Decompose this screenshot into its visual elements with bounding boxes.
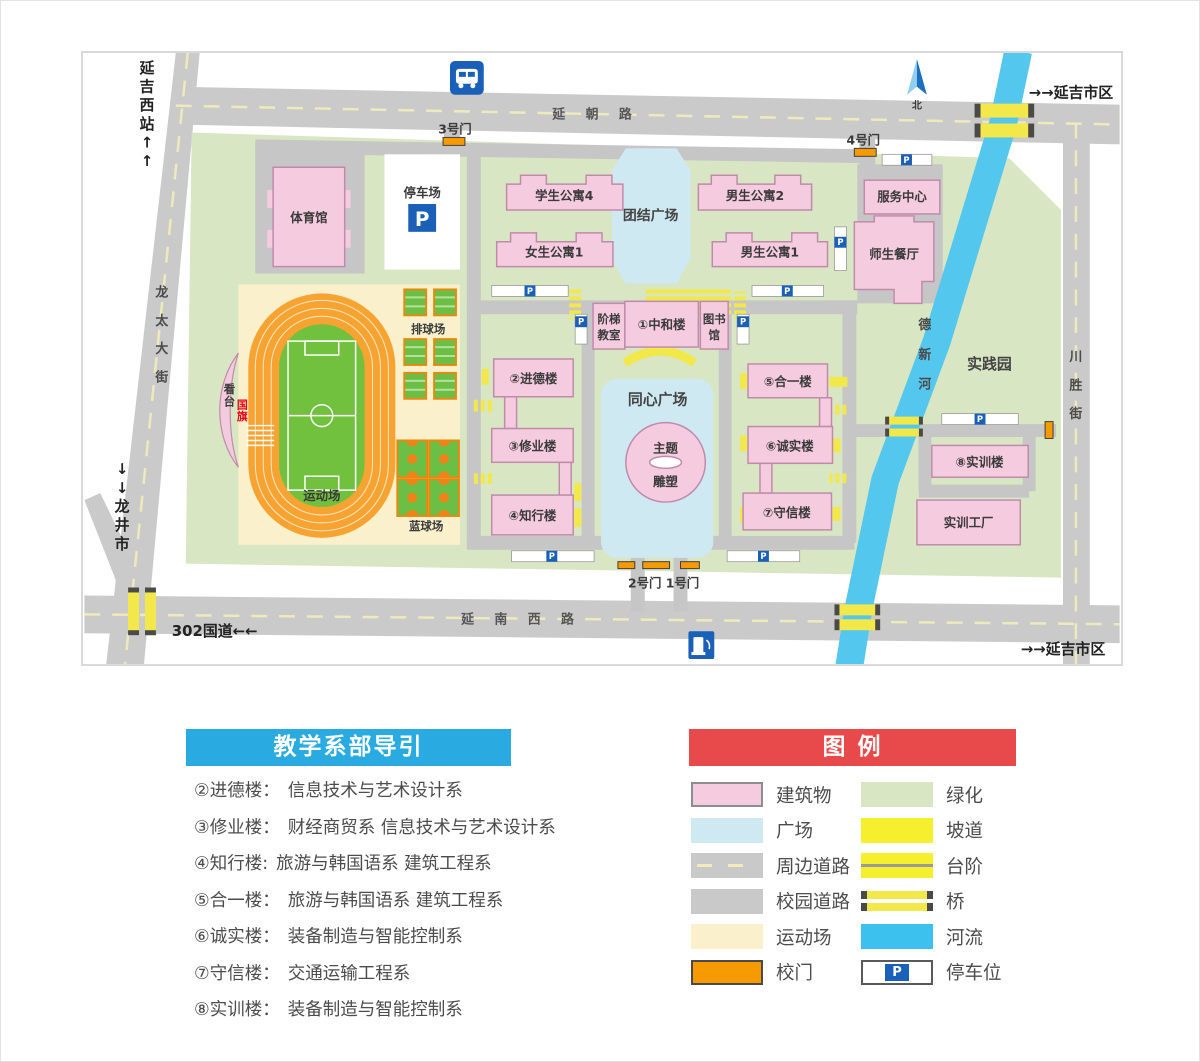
gate-4 <box>854 148 876 156</box>
legend-row-campus-road: 校园道路 <box>691 884 850 920</box>
svg-text:P: P <box>549 551 555 561</box>
parking-lot-label: 停车场 <box>404 185 441 200</box>
guide-panel-title: 教学系部导引 <box>186 729 511 766</box>
campus-road-swatch <box>691 889 763 914</box>
svg-text:P: P <box>903 155 909 165</box>
parking-swatch-p: P <box>885 964 909 981</box>
paiqiuchang-label: 排球场 <box>411 322 445 336</box>
guide-item-name: ④知行楼: <box>194 854 268 874</box>
sculpture-oval <box>650 456 682 468</box>
guide-item-dept: 旅游与韩国语系 建筑工程系 <box>276 854 492 874</box>
svg-text:P: P <box>527 286 533 296</box>
legend-panel-title: 图 例 <box>689 729 1016 766</box>
shijianyuan-label: 实践园 <box>967 355 1012 373</box>
legend-row-building: 建筑物 <box>691 777 850 813</box>
road-yannanxi-label: 延 南 西 路 <box>460 611 582 627</box>
gate-2 <box>618 562 635 569</box>
xiuye-label: ③修业楼 <box>509 438 557 453</box>
jieti-label-1: 阶梯 <box>598 312 621 326</box>
guide-item: ③修业楼：财经商贸系 信息技术与艺术设计系 <box>194 810 674 847</box>
yundongchang-label: 运动场 <box>303 488 340 503</box>
guide-item: ⑥诚实楼：装备制造与智能控制系 <box>194 919 674 956</box>
gate-middle <box>643 562 670 569</box>
guide-item: ②进德楼：信息技术与艺术设计系 <box>194 773 674 810</box>
guide-item-dept: 财经商贸系 信息技术与艺术设计系 <box>288 818 556 838</box>
legend-row-green: 绿化 <box>861 777 1002 813</box>
guide-list: ②进德楼：信息技术与艺术设计系 ③修业楼：财经商贸系 信息技术与艺术设计系 ④知… <box>194 773 674 1029</box>
tushu-label-1: 图书 <box>703 312 726 326</box>
campus-map: P <box>81 51 1123 666</box>
guide-item-name: ⑧实训楼： <box>194 1000 280 1020</box>
corridor-2-3 <box>505 397 517 429</box>
legend-row-river: 河流 <box>861 919 1002 955</box>
guide-item: ⑤合一楼：旅游与韩国语系 建筑工程系 <box>194 883 674 920</box>
diaosu-label: 雕塑 <box>653 474 678 489</box>
legend-row-parking: P停车位 <box>861 955 1002 991</box>
jinde-label: ②进德楼 <box>510 371 558 386</box>
outer-road-swatch <box>691 853 763 878</box>
guide-item-dept: 装备制造与智能控制系 <box>288 1000 463 1020</box>
guide-item-name: ⑤合一楼： <box>194 891 280 911</box>
gate-1 <box>680 562 699 569</box>
bridge-swatch <box>861 889 933 914</box>
shixunlou-label: ⑧实训楼 <box>956 454 1004 469</box>
svg-text:P: P <box>977 414 983 424</box>
field-swatch <box>691 924 763 949</box>
tuanjie-label: 团结广场 <box>623 207 679 224</box>
guoqi-label: 国旗 <box>237 399 248 423</box>
longjing-label: ↓↓龙井市 <box>114 460 130 553</box>
nansheng1-label: 男生公寓1 <box>741 245 799 260</box>
gate-east <box>1045 422 1053 439</box>
ramp-swatch <box>861 818 933 843</box>
basketball-courts <box>397 440 459 516</box>
guide-item-name: ⑥诚实楼： <box>194 927 280 947</box>
city-bottom-label: →→延吉市区 <box>1021 640 1106 658</box>
building-swatch <box>691 782 763 807</box>
guide-item-dept: 交通运输工程系 <box>288 964 411 984</box>
legend-row-plaza: 广场 <box>691 813 850 849</box>
legend-row-field: 运动场 <box>691 919 850 955</box>
bus-stop-icon <box>450 61 484 95</box>
station-label: 延吉西站↑↑ <box>139 59 155 170</box>
guide-item-dept: 装备制造与智能控制系 <box>288 927 463 947</box>
tongxin-label: 同心广场 <box>628 391 688 409</box>
corridor-6-7 <box>760 463 772 493</box>
tushu-label-2: 馆 <box>709 328 720 342</box>
svg-text:P: P <box>784 286 790 296</box>
guide-item: ④知行楼:旅游与韩国语系 建筑工程系 <box>194 846 674 883</box>
guide-item: ⑦守信楼：交通运输工程系 <box>194 956 674 993</box>
corridor-5-6 <box>820 398 832 427</box>
zhonghe-label: ①中和楼 <box>638 317 686 332</box>
legend-row-outer-road: 周边道路 <box>691 848 850 884</box>
shouxin-label: ⑦守信楼 <box>763 505 811 520</box>
gate21-label: 2号门 1号门 <box>628 576 699 591</box>
legend-row-steps: 台阶 <box>861 848 1002 884</box>
guide-item-name: ③修业楼： <box>194 818 280 838</box>
shisheng-label: 师生餐厅 <box>869 247 919 262</box>
legend-column-1: 建筑物 广场 周边道路 校园道路 运动场 校门 <box>691 777 850 990</box>
fuwu-label: 服务中心 <box>877 189 927 204</box>
legend-row-ramp: 坡道 <box>861 813 1002 849</box>
guide-item: ⑧实训楼：装备制造与智能控制系 <box>194 992 674 1029</box>
city-top-label: →→延吉市区 <box>1029 84 1114 102</box>
legend-row-bridge: 桥 <box>861 884 1002 920</box>
road-chuansheng-label: 川胜街 <box>1068 350 1082 422</box>
plaza-swatch <box>691 818 763 843</box>
svg-text:P: P <box>837 237 843 247</box>
road-yanchao-label: 延 朝 路 <box>551 107 639 123</box>
svg-text:P: P <box>578 317 584 327</box>
gate-3 <box>443 137 465 145</box>
guide-item-dept: 旅游与韩国语系 建筑工程系 <box>288 891 504 911</box>
guide-item-name: ②进德楼： <box>194 781 280 801</box>
lanqiuchang-label: 蓝球场 <box>409 519 443 533</box>
xuesheng4-label: 学生公寓4 <box>535 188 594 203</box>
north-label: 北 <box>912 99 922 112</box>
guide-item-name: ⑦守信楼： <box>194 964 280 984</box>
campus-map-svg: P <box>83 53 1121 664</box>
shixun-gongchang-label: 实训工厂 <box>944 515 994 530</box>
chengshi-label: ⑥诚实楼 <box>766 438 814 453</box>
legend-row-gate: 校门 <box>691 955 850 991</box>
gas-station-icon <box>688 631 714 659</box>
green-swatch <box>861 782 933 807</box>
jieti-label-2: 教室 <box>597 328 621 342</box>
steps-swatch <box>861 853 933 878</box>
nvsheng1-label: 女生公寓1 <box>525 245 583 260</box>
gate3-label: 3号门 <box>438 121 471 136</box>
nansheng2-label: 男生公寓2 <box>726 188 784 203</box>
page-canvas: P <box>0 0 1200 1062</box>
zhuti-label: 主题 <box>653 440 678 455</box>
parking-lot-p-text: P <box>415 208 430 231</box>
tiyuguan-label: 体育馆 <box>290 210 327 225</box>
gate-swatch <box>691 960 763 985</box>
zhixing-label: ④知行楼 <box>509 508 557 523</box>
river-swatch <box>861 924 933 949</box>
svg-text:P: P <box>740 317 746 327</box>
gate4-label: 4号门 <box>847 132 880 147</box>
legend-column-2: 绿化 坡道 台阶 桥 河流 P停车位 <box>861 777 1002 990</box>
svg-text:P: P <box>760 551 766 561</box>
heyi-label: ⑤合一楼 <box>764 374 812 389</box>
national-road-label: 302国道←← <box>172 622 258 640</box>
river-dexin-label: 德新河 <box>918 317 931 392</box>
corridor-3-4 <box>559 462 571 495</box>
kantai-label: 看台 <box>223 382 235 409</box>
parking-swatch: P <box>861 960 933 985</box>
guide-item-dept: 信息技术与艺术设计系 <box>288 781 463 801</box>
